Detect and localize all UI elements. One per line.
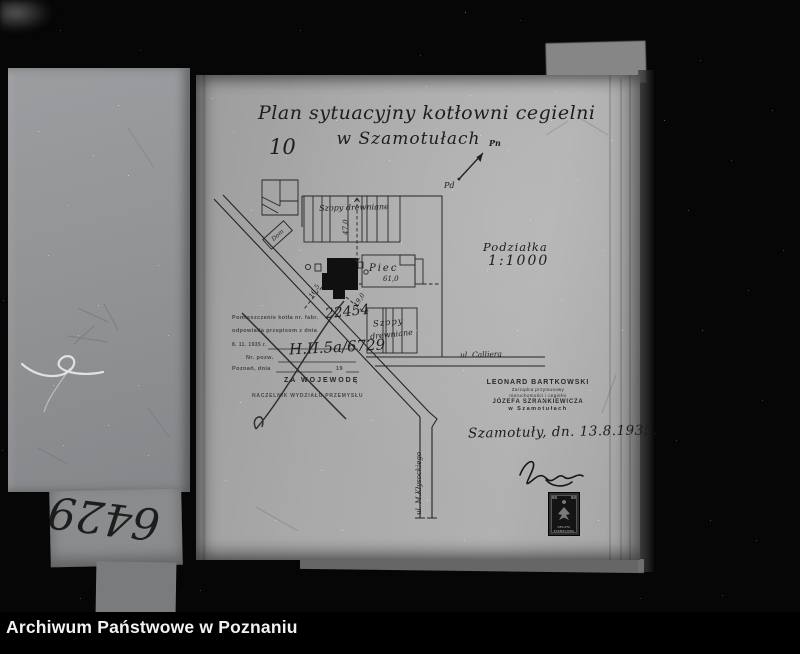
approval-stamp-year: 19 — [336, 366, 343, 372]
approval-stamp-line4: Nr. pozw. — [246, 355, 274, 361]
measurement-lines — [304, 198, 441, 314]
compass-south-label: Pd — [444, 181, 455, 190]
scale-value: 1:1000 — [488, 253, 549, 269]
manager-stamp-name: LEONARD BARTKOWSKI — [474, 379, 602, 386]
approval-stamp-line1: Pomieszczenie kotła nr. fabr. — [232, 315, 319, 321]
dust-speckles-sheet — [196, 75, 197, 76]
scale-label: Podziałka — [483, 240, 548, 254]
revenue-stamp: 50 50 OPŁATA STEMPLOWA — [548, 492, 580, 536]
manager-stamp-role1: Zarządca przymusowy — [474, 387, 602, 392]
archive-caption-bar: Archiwum Państwowe w Poznaniu — [0, 612, 800, 654]
compass-north-label: Pn — [489, 138, 501, 148]
place-date-handwritten: Szamotuły, dn. 13.8.1935. — [468, 422, 658, 441]
left-page-tab-lower — [96, 561, 177, 614]
dust-speckles-background — [0, 0, 1, 1]
approval-stamp-line3: 8. 11. 1935 r. — [232, 342, 267, 348]
scanned-photograph: 6429 — [0, 0, 800, 654]
street-label-calliera: ul. Calliera — [460, 349, 502, 359]
backing-sheet-edge — [638, 70, 654, 572]
signature — [520, 462, 583, 486]
approval-stamp-voivode: ZA WOJEWODĘ — [284, 377, 359, 384]
left-file-page — [8, 68, 190, 492]
revenue-stamp-caption2: STEMPLOWA — [549, 529, 579, 533]
measurement-47: 47,0 — [342, 219, 350, 235]
street-label-klysockiego: ul. M.Kłysockiego — [415, 452, 423, 515]
boiler-house-footprint — [322, 258, 358, 299]
plan-sheet: Plan sytuacyjny kotłowni cegielni w Szam… — [196, 75, 640, 560]
manager-stamp-owner: JÓZEFA SZRANKIEWICZA — [474, 399, 602, 405]
photo-corner-smudge — [0, 0, 52, 32]
page-number: 10 — [269, 135, 296, 159]
plan-title-line1: Plan sytuacyjny kotłowni cegielni — [258, 102, 553, 124]
approval-stamp-line5: Poznań, dnia — [232, 366, 271, 372]
manager-stamp-role2: nieruchomości i cegielni — [474, 393, 602, 398]
plan-title-line2: w Szamotułach — [326, 129, 491, 149]
kiln-dimension: 61,0 — [383, 275, 399, 283]
approval-stamp-line2: odpowiada przepisom z dnia — [232, 328, 317, 334]
left-page-scratches — [8, 68, 190, 492]
north-arrow — [458, 153, 483, 180]
manager-stamp: LEONARD BARTKOWSKI Zarządca przymusowy n… — [474, 379, 602, 412]
kiln-label: Piec — [369, 263, 398, 274]
manager-stamp-town: w Szamotułach — [474, 406, 602, 412]
surface-scratches — [256, 117, 616, 531]
archive-name: Archiwum Państwowe w Poznaniu — [6, 617, 298, 638]
approval-stamp-department: NACZELNIK WYDZIAŁU PRZEMYSŁU — [252, 393, 363, 399]
